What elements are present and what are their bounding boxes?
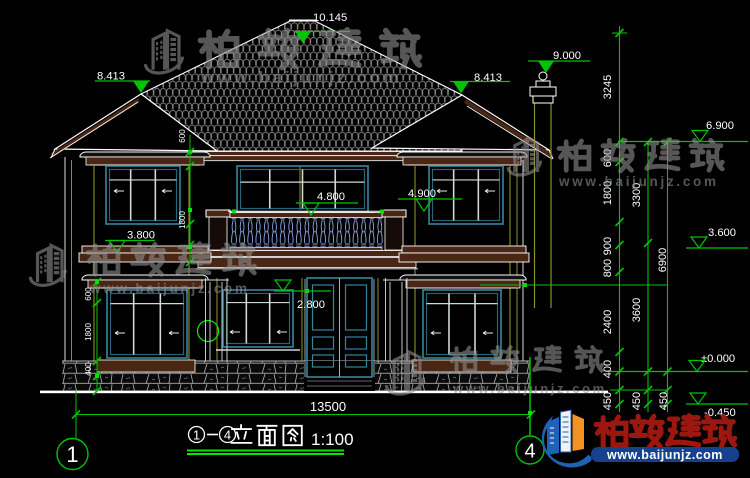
svg-text:4: 4 [524, 441, 535, 463]
svg-text:1800: 1800 [178, 211, 187, 229]
svg-text:9.000: 9.000 [553, 50, 581, 62]
svg-text:1800: 1800 [84, 323, 93, 341]
svg-text:400: 400 [84, 362, 93, 376]
svg-text:3.600: 3.600 [708, 227, 736, 239]
svg-text:2400: 2400 [602, 310, 614, 334]
svg-text:3600: 3600 [631, 298, 643, 322]
svg-text:1: 1 [193, 428, 200, 443]
svg-text:4.800: 4.800 [317, 191, 345, 203]
svg-text:4: 4 [224, 428, 231, 443]
svg-text:2.800: 2.800 [297, 299, 325, 311]
svg-text:www.baijunjz.com: www.baijunjz.com [200, 68, 402, 87]
svg-text:1: 1 [66, 442, 78, 467]
svg-text:±0.000: ±0.000 [701, 353, 735, 365]
svg-text:www.baijunjz.com: www.baijunjz.com [606, 448, 723, 462]
svg-text:900: 900 [602, 237, 614, 255]
svg-text:www.baijunjz.com: www.baijunjz.com [558, 174, 719, 189]
svg-text:6900: 6900 [657, 248, 669, 272]
svg-text:450: 450 [631, 392, 643, 410]
svg-text:13500: 13500 [310, 399, 346, 414]
svg-text:4.900: 4.900 [408, 188, 436, 200]
svg-text:3245: 3245 [602, 75, 614, 99]
svg-text:1:100: 1:100 [311, 430, 354, 449]
svg-text:6.900: 6.900 [706, 120, 734, 132]
svg-text:800: 800 [602, 259, 614, 277]
svg-text:8.413: 8.413 [474, 72, 502, 84]
svg-text:www.baijunjz.com: www.baijunjz.com [89, 281, 250, 296]
svg-text:3.800: 3.800 [127, 230, 155, 242]
svg-text:10.145: 10.145 [313, 12, 347, 24]
svg-text:600: 600 [178, 129, 187, 143]
svg-text:450: 450 [658, 392, 670, 410]
svg-text:400: 400 [602, 360, 614, 378]
svg-text:www.baijunjz.com: www.baijunjz.com [452, 381, 607, 396]
